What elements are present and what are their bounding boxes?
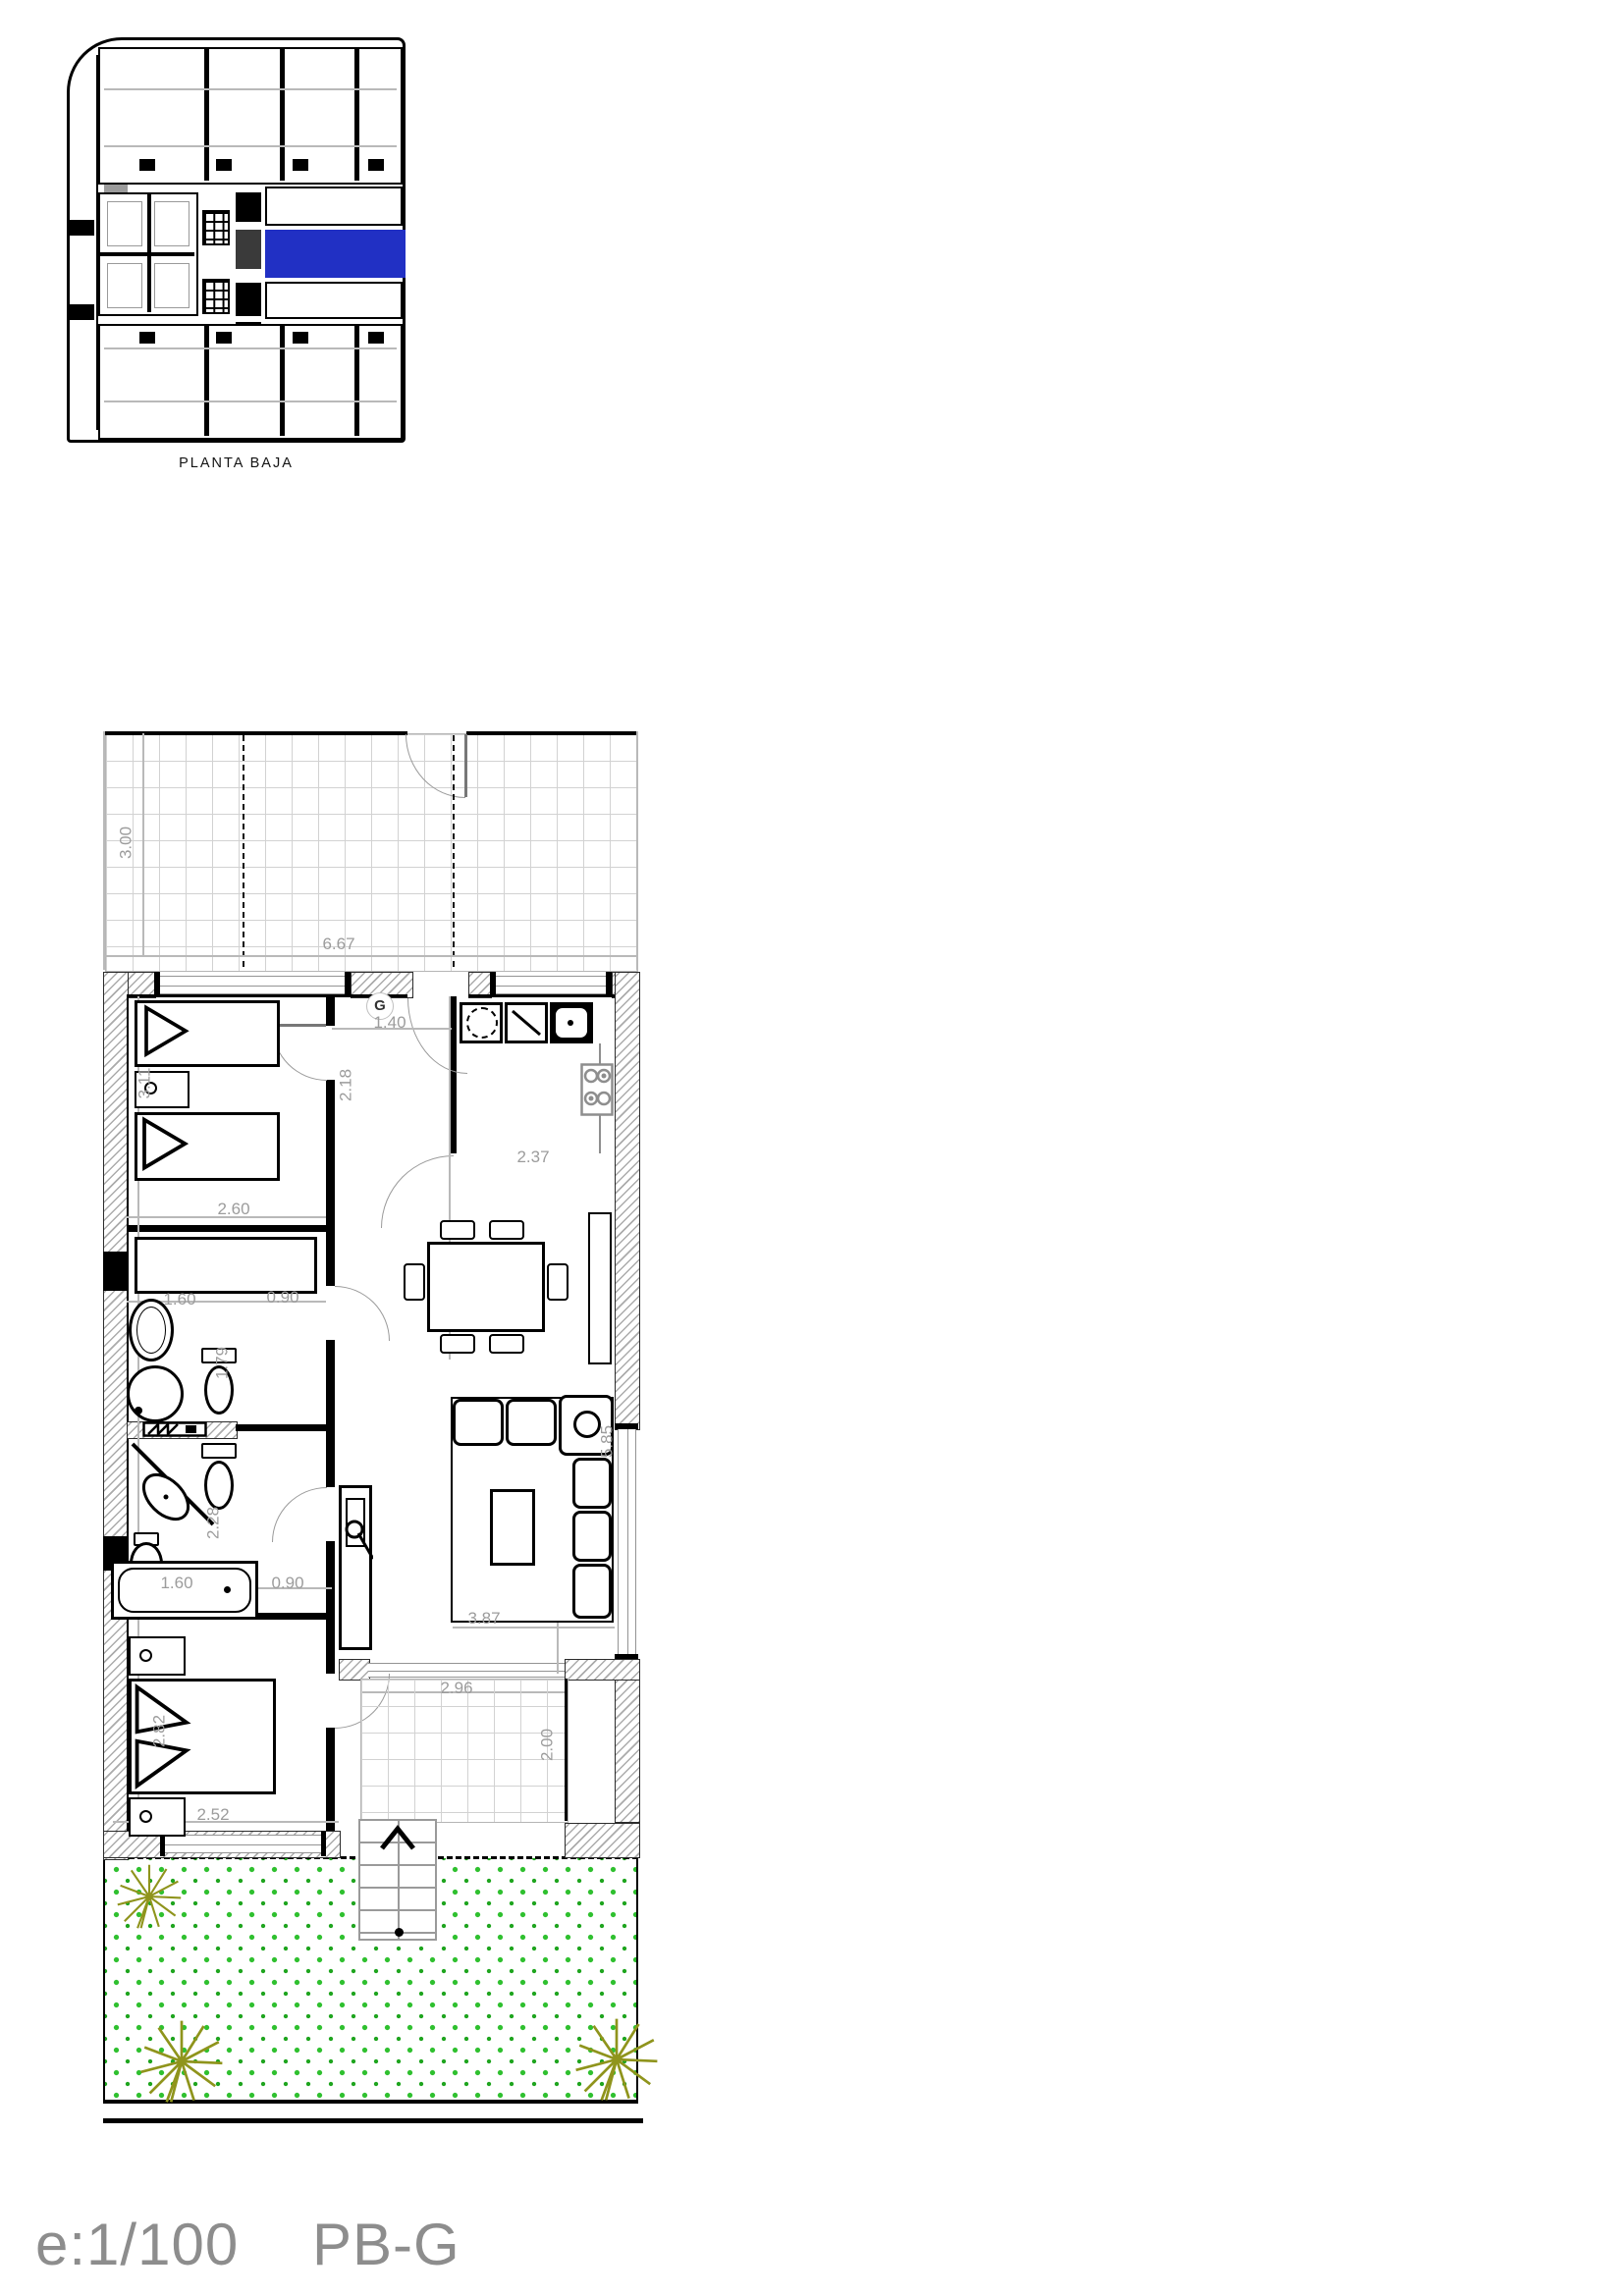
sofa-cushion — [506, 1399, 557, 1446]
cluster-wall — [100, 252, 194, 256]
dim-living-width: 3.87 — [462, 1610, 506, 1627]
wall — [565, 1823, 640, 1858]
stair-grid — [202, 210, 230, 245]
party-wall — [280, 49, 285, 181]
highlighted-unit — [265, 230, 406, 278]
sofa-cushion — [572, 1511, 612, 1562]
tv-unit-icon — [339, 1485, 372, 1650]
planta-baja-label: PLANTA BAJA — [67, 455, 406, 471]
nightstand-icon — [129, 1797, 186, 1837]
unit-right-bottom — [265, 282, 403, 319]
sofa-cushion — [572, 1564, 612, 1619]
unit-line — [104, 88, 397, 90]
patio — [107, 201, 142, 246]
dim-bathtub-length: 1.60 — [155, 1575, 198, 1591]
chair-icon — [404, 1263, 425, 1301]
pergola-dashed-line — [453, 735, 455, 967]
stair-grid — [202, 279, 230, 314]
unit-code-label: PB-G — [312, 2211, 460, 2278]
partition-wall — [326, 1541, 335, 1674]
drain-icon — [568, 1020, 573, 1026]
up-arrow-icon — [378, 1825, 417, 1850]
dim-bath2-door: 0.90 — [266, 1575, 309, 1591]
bedroom2-window — [165, 1835, 321, 1853]
unit-row-bottom — [98, 324, 403, 440]
terrace-door-leaf — [464, 734, 467, 797]
vanity-counter — [135, 1237, 317, 1294]
patio — [154, 263, 189, 308]
wall-right-lower — [615, 1660, 640, 1823]
stair-start-dot — [395, 1928, 404, 1937]
chair-icon — [489, 1334, 524, 1354]
unit-core — [139, 159, 155, 171]
unit-right-top — [265, 187, 403, 226]
dim-bedroom1-depth: 3.11 — [136, 1062, 153, 1105]
plant-icon — [137, 2017, 226, 2106]
dim-entry-width: 1.40 — [368, 1014, 411, 1031]
chair-icon — [489, 1220, 524, 1240]
plant-icon — [572, 2015, 661, 2104]
entry-door-swing — [407, 998, 467, 1074]
partition-wall — [326, 1080, 335, 1286]
dim-bath1-width: 1.60 — [158, 1291, 201, 1308]
pergola-dashed-line — [243, 735, 244, 967]
dim-terrace2-depth: 2.00 — [539, 1724, 556, 1767]
dim-bath1-depth: 1.79 — [214, 1342, 231, 1385]
partition-wall — [326, 996, 335, 1026]
washing-machine-icon — [460, 1002, 503, 1043]
partition-wall — [236, 1424, 326, 1431]
stair-core — [236, 230, 261, 269]
unit-core — [139, 332, 155, 344]
terrace-parapet — [466, 731, 638, 735]
unit-core — [216, 159, 232, 171]
dim-terrace-width: 6.67 — [317, 935, 360, 952]
bedroom1-window — [160, 976, 345, 994]
unit-line — [104, 145, 397, 147]
vent-window-icon — [142, 1421, 207, 1437]
single-bed-icon — [135, 1000, 280, 1067]
chair-icon — [547, 1263, 568, 1301]
unit-cluster-left — [98, 192, 198, 316]
scale-label: e:1/100 — [35, 2211, 239, 2278]
coffee-table-icon — [490, 1489, 535, 1566]
drainer-icon — [505, 1002, 548, 1043]
dim-terrace-depth: 3.00 — [118, 822, 135, 865]
dim-bedroom1-width: 2.60 — [212, 1201, 255, 1217]
left-core-block — [70, 304, 94, 320]
door-leaf — [272, 1024, 326, 1027]
sink-icon — [550, 1002, 593, 1043]
patio — [154, 201, 189, 246]
dim-bath2-depth: 2.28 — [205, 1502, 222, 1545]
dim-hall-depth: 2.18 — [338, 1064, 354, 1107]
terrace-edge — [636, 731, 638, 970]
dim-living-depth: 5.85 — [599, 1420, 616, 1464]
plant-icon — [115, 1862, 184, 1931]
tub-drain-icon — [224, 1586, 231, 1593]
unit-core — [368, 159, 384, 171]
inner-wall-line — [468, 994, 615, 997]
dim-bedroom2-depth: 2.82 — [151, 1710, 168, 1753]
overview-plan — [67, 37, 406, 443]
chair-icon — [440, 1220, 475, 1240]
sofa-cushion — [453, 1399, 504, 1446]
bedroom1-door-swing — [272, 1026, 327, 1081]
unit-line — [104, 347, 397, 349]
unit-row-top — [98, 47, 403, 185]
unit-core — [293, 332, 308, 344]
sofa-cushion — [572, 1458, 612, 1509]
terrace-edge — [103, 731, 105, 970]
dining-table-icon — [427, 1242, 545, 1332]
left-core-block — [70, 220, 94, 236]
party-wall — [354, 326, 359, 436]
unit-core — [293, 159, 308, 171]
sideboard-icon — [588, 1212, 612, 1364]
dim-bedroom2-width: 2.52 — [191, 1806, 235, 1823]
detail-plan: 3.00 6.67 — [103, 731, 643, 2125]
elevator-core — [236, 192, 261, 222]
living-window — [618, 1429, 636, 1655]
party-wall — [280, 326, 285, 436]
elevator-core — [236, 283, 261, 316]
wall — [565, 1659, 640, 1681]
dim-bath1-door: 0.90 — [261, 1289, 304, 1306]
washer-drum-icon — [466, 1007, 498, 1039]
partition-wall — [127, 1225, 326, 1232]
terrace2-slider-window — [368, 1663, 565, 1678]
dim-line — [142, 733, 144, 955]
patio — [107, 263, 142, 308]
party-wall — [204, 326, 209, 436]
inner-wall-line — [127, 994, 407, 997]
floor-plan-sheet: PLANTA BAJA 3.00 6.67 — [0, 0, 1624, 2296]
sheet-divider-line — [103, 2118, 643, 2123]
terrace-parapet — [103, 731, 407, 735]
bath2-door-swing — [272, 1487, 327, 1542]
terrace-tile-floor — [105, 733, 638, 972]
nightstand-icon — [129, 1636, 186, 1676]
unit-core — [368, 332, 384, 344]
party-wall — [354, 49, 359, 181]
unit-core — [216, 332, 232, 344]
kitchen-door-swing — [381, 1155, 454, 1228]
lamp-icon — [139, 1810, 152, 1823]
party-wall — [204, 49, 209, 181]
window-jamb — [321, 1831, 326, 1856]
boiler-icon — [127, 1365, 184, 1422]
unit-line — [104, 400, 397, 402]
terrace2-edge — [565, 1679, 568, 1821]
stairs — [358, 1819, 437, 1941]
chair-icon — [440, 1334, 475, 1354]
partition-wall — [326, 1340, 335, 1487]
wall-right — [615, 972, 640, 1430]
dim-terrace2-width: 2.96 — [435, 1680, 478, 1696]
wall-left — [103, 972, 129, 1860]
single-bed-icon — [135, 1112, 280, 1181]
dim-line — [103, 955, 638, 957]
lamp-icon — [139, 1649, 152, 1662]
stove-icon — [580, 1063, 614, 1116]
dim-kitchen-width: 2.37 — [512, 1148, 555, 1165]
kitchen-window — [496, 976, 606, 994]
shaft-block — [103, 1252, 127, 1291]
bath1-door-swing — [335, 1286, 390, 1341]
